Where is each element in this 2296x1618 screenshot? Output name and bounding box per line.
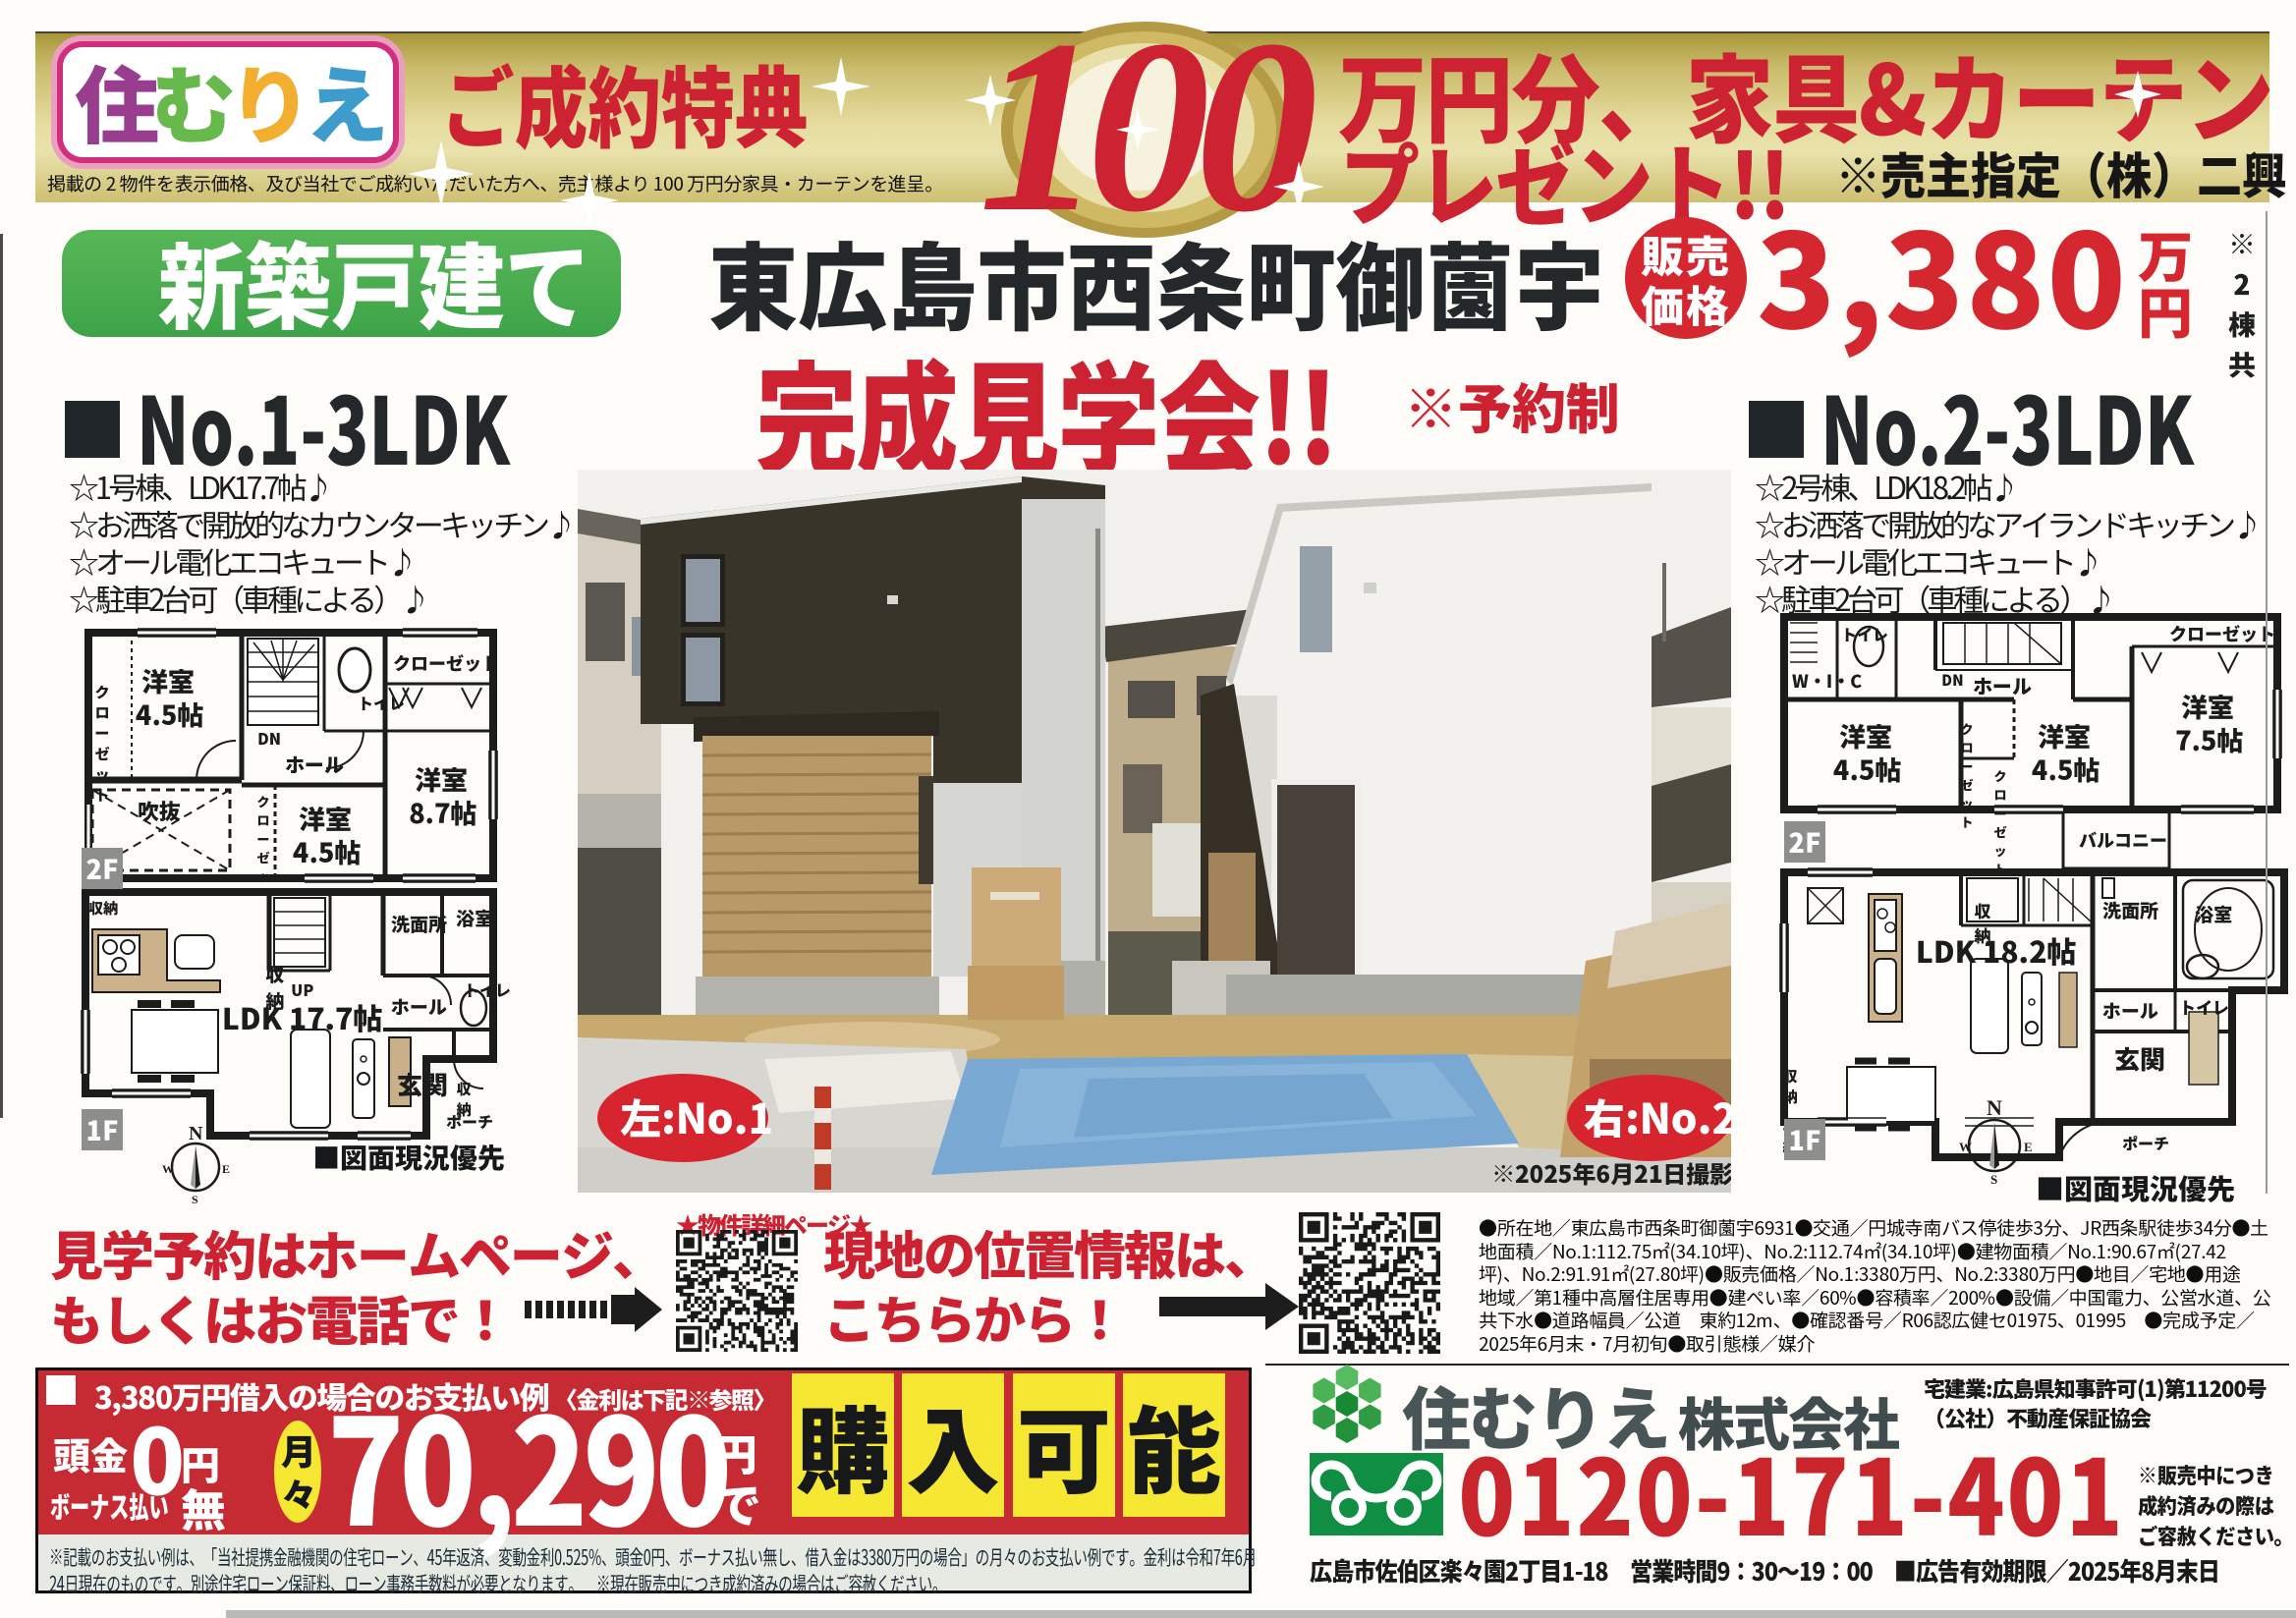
svg-text:S: S bbox=[192, 1193, 198, 1204]
svg-text:収納: 収納 bbox=[87, 898, 118, 919]
svg-text:クローゼット: クローゼット bbox=[92, 682, 113, 806]
svg-text:トイレ: トイレ bbox=[464, 977, 511, 1001]
svg-text:LDK 17.7帖: LDK 17.7帖 bbox=[222, 995, 382, 1038]
svg-text:LDK 18.2帖: LDK 18.2帖 bbox=[1916, 928, 2076, 972]
svg-text:ポーチ: ポーチ bbox=[2122, 1131, 2169, 1154]
svg-text:洗面所: 洗面所 bbox=[2102, 897, 2158, 923]
svg-text:トイレ: トイレ bbox=[1841, 622, 1888, 645]
svg-text:収納: 収納 bbox=[1780, 1066, 1801, 1107]
svg-text:W: W bbox=[1959, 1140, 1972, 1154]
svg-text:DN: DN bbox=[1941, 670, 1963, 691]
svg-text:右:No.2: 右:No.2 bbox=[1584, 1087, 1731, 1146]
svg-text:洗面所: 洗面所 bbox=[391, 911, 447, 937]
svg-text:バルコニー: バルコニー bbox=[2079, 827, 2167, 853]
svg-text:E: E bbox=[222, 1162, 230, 1176]
svg-text:4.5帖: 4.5帖 bbox=[2032, 750, 2100, 788]
svg-text:ホール: ホール bbox=[285, 750, 344, 778]
svg-text:W: W bbox=[162, 1162, 174, 1176]
svg-text:DN: DN bbox=[257, 726, 281, 750]
svg-text:玄関: 玄関 bbox=[2114, 1040, 2165, 1077]
svg-text:トイレ: トイレ bbox=[358, 691, 405, 714]
svg-text:トイレ: トイレ bbox=[2179, 994, 2229, 1019]
svg-text:ポーチ: ポーチ bbox=[446, 1109, 493, 1133]
svg-text:クローゼット: クローゼット bbox=[1958, 719, 1977, 831]
svg-text:W・I・C: W・I・C bbox=[1792, 668, 1862, 694]
svg-text:収納: 収納 bbox=[1971, 898, 1995, 947]
svg-text:4.5帖: 4.5帖 bbox=[136, 695, 203, 733]
svg-text:クローゼット: クローゼット bbox=[393, 650, 499, 676]
svg-text:S: S bbox=[1990, 1172, 1997, 1185]
svg-text:N: N bbox=[189, 1126, 203, 1144]
svg-text:左:No.1: 左:No.1 bbox=[620, 1087, 773, 1146]
svg-text:浴室: 浴室 bbox=[456, 905, 493, 931]
svg-text:クローゼット: クローゼット bbox=[254, 792, 273, 894]
svg-text:8.7帖: 8.7帖 bbox=[409, 793, 476, 831]
svg-text:UP: UP bbox=[291, 977, 313, 1001]
svg-text:E: E bbox=[2024, 1140, 2032, 1154]
svg-text:ホール: ホール bbox=[391, 993, 447, 1020]
svg-text:7.5帖: 7.5帖 bbox=[2175, 720, 2243, 758]
svg-text:吹抜: 吹抜 bbox=[138, 795, 182, 826]
svg-text:玄関: 玄関 bbox=[397, 1066, 448, 1102]
svg-text:浴室: 浴室 bbox=[2195, 901, 2232, 927]
svg-text:4.5帖: 4.5帖 bbox=[1833, 750, 1901, 788]
svg-text:N: N bbox=[1987, 1100, 2002, 1120]
svg-text:※2025年6月21日撮影: ※2025年6月21日撮影 bbox=[1491, 1155, 1731, 1190]
svg-text:ホール: ホール bbox=[1973, 671, 2032, 699]
svg-text:4.5帖: 4.5帖 bbox=[293, 832, 361, 870]
svg-text:ホール: ホール bbox=[2102, 997, 2158, 1024]
svg-text:クローゼット: クローゼット bbox=[1991, 766, 2010, 876]
svg-text:クローゼット: クローゼット bbox=[2169, 621, 2275, 646]
svg-text:収納: 収納 bbox=[262, 961, 289, 1014]
